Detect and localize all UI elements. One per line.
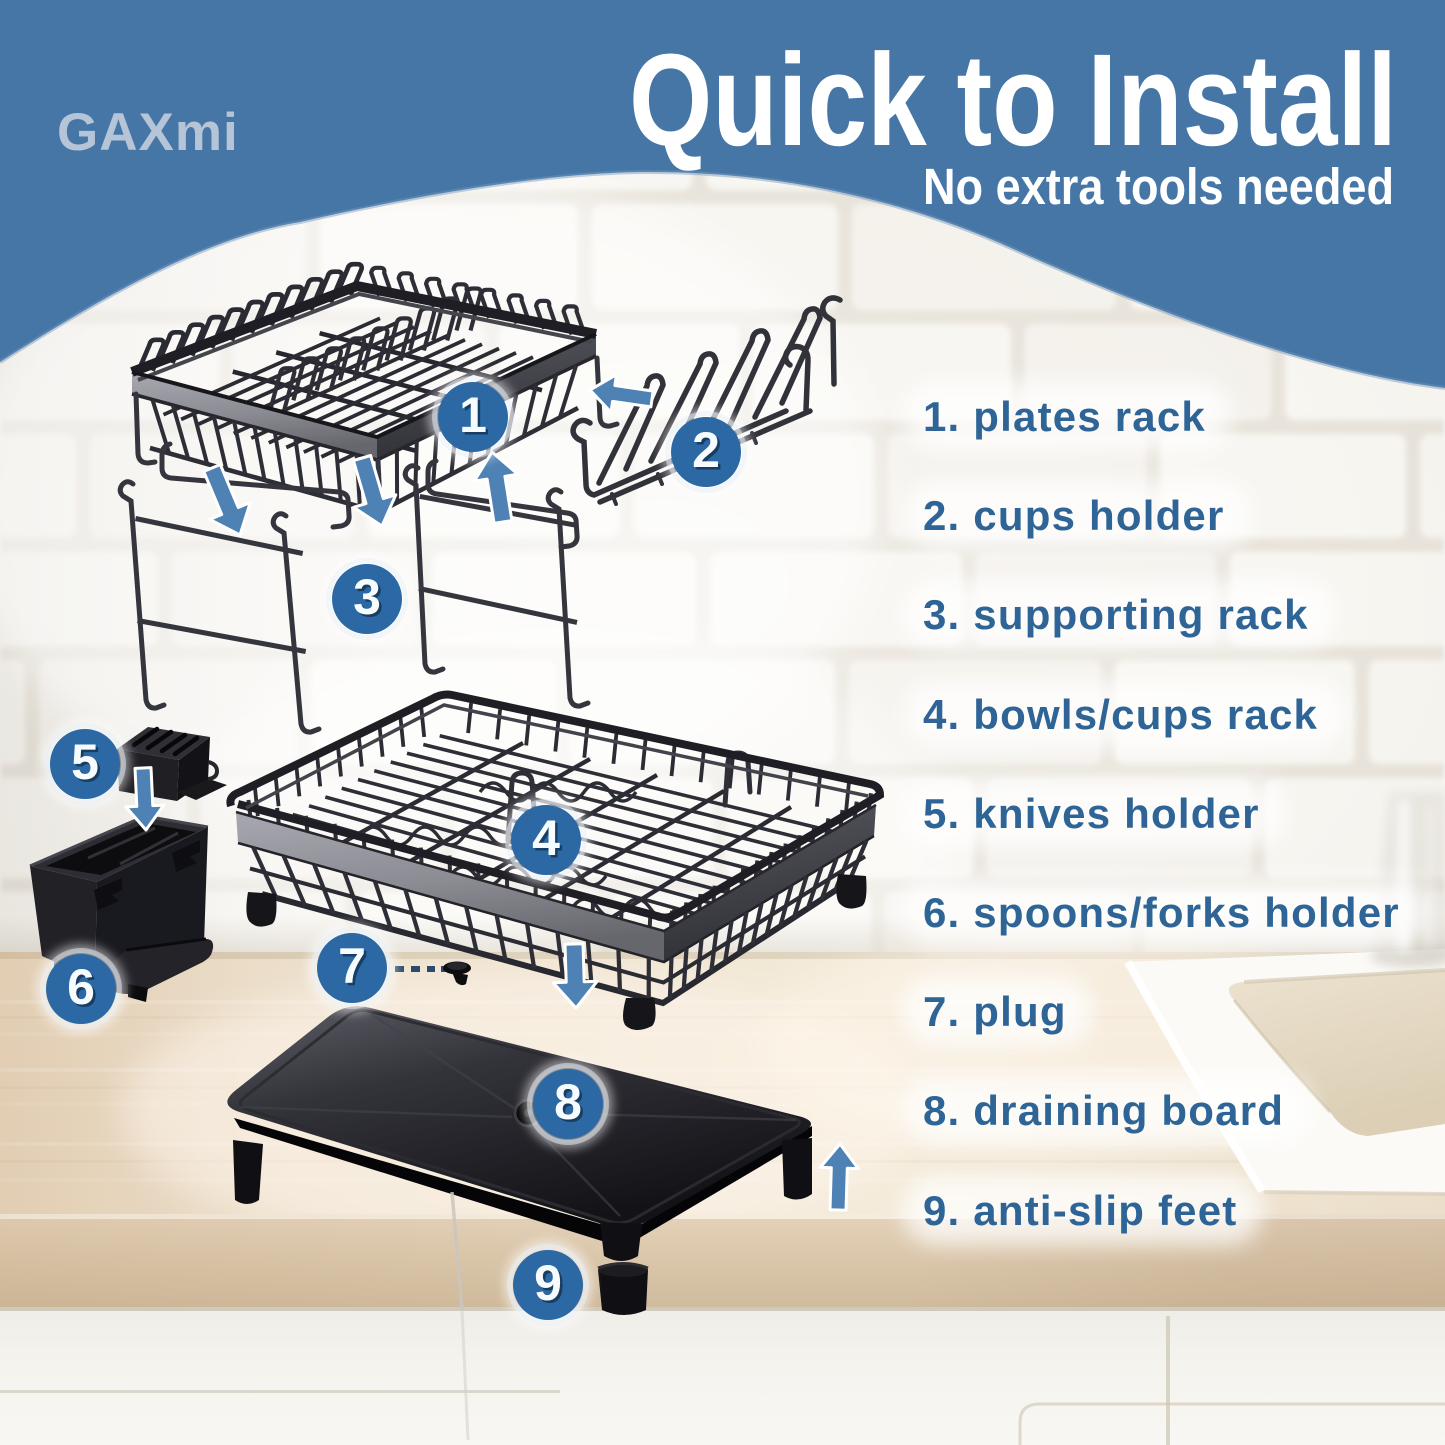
svg-text:7: 7 xyxy=(338,938,366,994)
svg-text:3: 3 xyxy=(353,569,381,625)
svg-text:5: 5 xyxy=(71,734,99,790)
svg-text:2. cups holder: 2. cups holder xyxy=(923,492,1225,539)
svg-text:6: 6 xyxy=(67,959,95,1015)
svg-text:6. spoons/forks holder: 6. spoons/forks holder xyxy=(923,889,1400,936)
svg-text:9: 9 xyxy=(534,1255,562,1311)
svg-text:5. knives holder: 5. knives holder xyxy=(923,790,1260,837)
svg-text:1: 1 xyxy=(459,387,487,443)
svg-text:2: 2 xyxy=(692,422,720,478)
svg-text:8: 8 xyxy=(554,1074,582,1130)
svg-text:7. plug: 7. plug xyxy=(923,988,1067,1035)
svg-text:Quick to Install: Quick to Install xyxy=(629,26,1397,173)
svg-text:No extra tools needed: No extra tools needed xyxy=(923,158,1394,215)
svg-text:8. draining board: 8. draining board xyxy=(923,1087,1284,1134)
svg-text:1. plates rack: 1. plates rack xyxy=(923,393,1206,440)
svg-text:4: 4 xyxy=(532,810,560,866)
svg-text:9. anti-slip feet: 9. anti-slip feet xyxy=(923,1187,1237,1234)
svg-text:3. supporting rack: 3. supporting rack xyxy=(923,591,1309,638)
svg-text:GAXmi: GAXmi xyxy=(57,103,239,162)
svg-text:4. bowls/cups rack: 4. bowls/cups rack xyxy=(923,691,1318,738)
